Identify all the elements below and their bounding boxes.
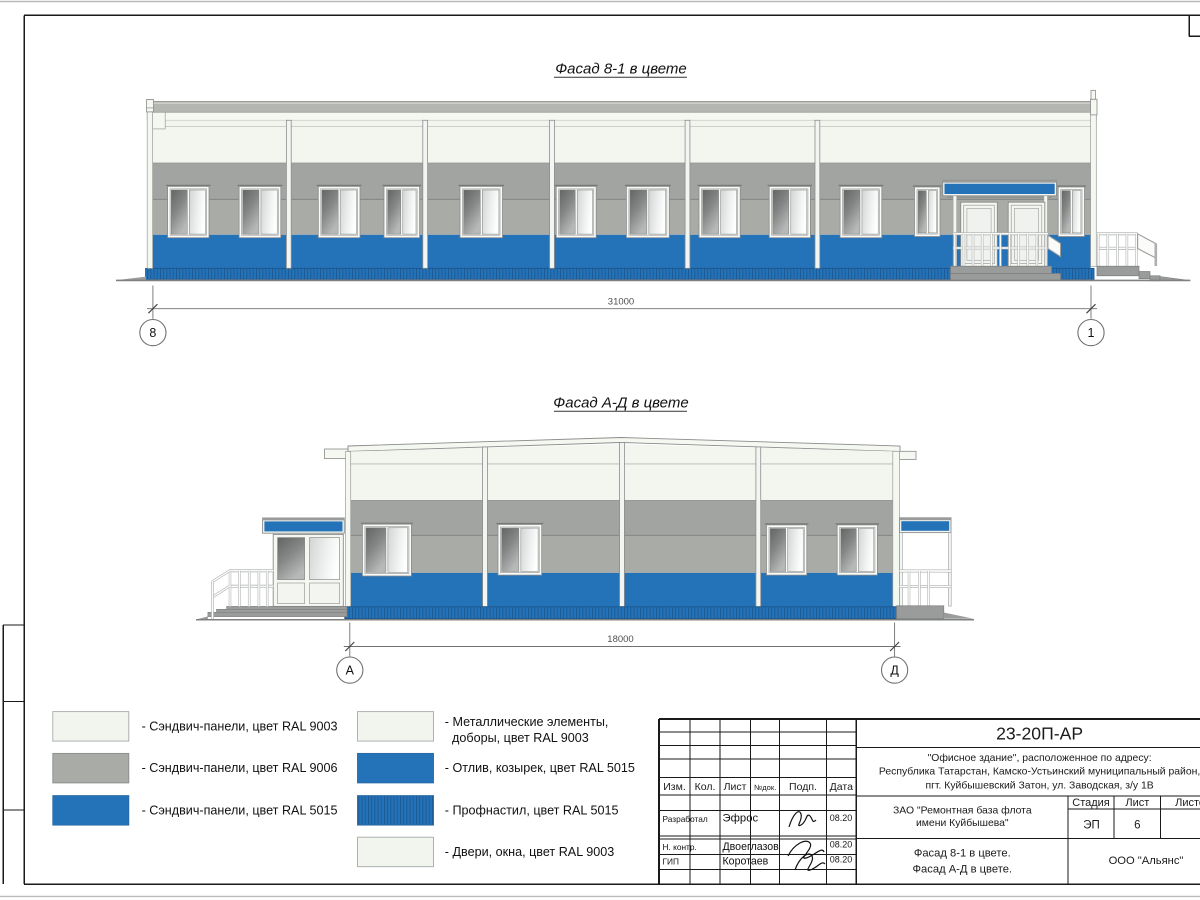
svg-text:Н. контр.: Н. контр. <box>663 842 697 852</box>
svg-text:Разработал: Разработал <box>663 814 708 824</box>
svg-text:Дата: Дата <box>830 781 853 793</box>
svg-text:Листов: Листов <box>1175 797 1200 809</box>
svg-text:Фасад 8-1 в цвете.: Фасад 8-1 в цвете. <box>914 847 1011 859</box>
svg-text:23-20П-АР: 23-20П-АР <box>996 724 1083 744</box>
svg-text:08.20: 08.20 <box>830 855 853 865</box>
svg-text:Д: Д <box>890 664 899 678</box>
svg-text:Республика Татарстан, Камско-У: Республика Татарстан, Камско-Устьинский … <box>879 766 1200 778</box>
svg-text:- Сэндвич-панели, цвет RAL 501: - Сэндвич-панели, цвет RAL 5015 <box>142 803 338 817</box>
svg-text:Двоеглазов: Двоеглазов <box>723 841 780 853</box>
svg-text:Стадия: Стадия <box>1072 797 1110 809</box>
svg-text:ЗАО "Ремонтная база флота: ЗАО "Ремонтная база флота <box>893 805 1032 817</box>
svg-text:Подп.: Подп. <box>789 781 817 793</box>
svg-text:"Офисное здание", расположенно: "Офисное здание", расположенное по адрес… <box>928 752 1152 764</box>
svg-text:пгт. Куйбышевский Затон, ул. З: пгт. Куйбышевский Затон, ул. Заводская, … <box>925 780 1153 792</box>
svg-text:6: 6 <box>1134 819 1140 831</box>
svg-text:Изм.: Изм. <box>663 781 686 793</box>
svg-text:8: 8 <box>149 326 156 340</box>
svg-text:- Отлив, козырек, цвет RAL 501: - Отлив, козырек, цвет RAL 5015 <box>445 761 635 775</box>
svg-text:Фасад А-Д в цвете: Фасад А-Д в цвете <box>553 395 688 412</box>
svg-text:ООО "Альянс": ООО "Альянс" <box>1109 855 1184 867</box>
svg-text:ЭП: ЭП <box>1083 819 1100 831</box>
svg-text:ГИП: ГИП <box>663 857 679 867</box>
svg-text:- Двери, окна, цвет RAL 9003: - Двери, окна, цвет RAL 9003 <box>445 845 614 859</box>
svg-text:08.20: 08.20 <box>830 840 853 850</box>
svg-text:31000: 31000 <box>608 297 634 308</box>
svg-text:Лист: Лист <box>1125 797 1149 809</box>
svg-text:доборы, цвет RAL 9003: доборы, цвет RAL 9003 <box>452 731 589 745</box>
svg-text:Фасад 8-1 в цвете: Фасад 8-1 в цвете <box>555 61 687 78</box>
svg-text:08.20: 08.20 <box>830 813 853 823</box>
svg-text:- Металлические элементы,: - Металлические элементы, <box>445 715 609 729</box>
svg-text:Лист: Лист <box>724 781 747 793</box>
svg-text:- Профнастил, цвет RAL 5015: - Профнастил, цвет RAL 5015 <box>445 803 619 817</box>
svg-text:- Сэндвич-панели, цвет RAL 900: - Сэндвич-панели, цвет RAL 9006 <box>142 761 338 775</box>
svg-text:Эфрос: Эфрос <box>723 813 759 825</box>
svg-text:- Сэндвич-панели, цвет RAL 900: - Сэндвич-панели, цвет RAL 9003 <box>142 719 338 733</box>
svg-text:Кол.: Кол. <box>695 781 716 793</box>
svg-text:№док.: №док. <box>754 783 776 792</box>
svg-text:имени Куйбышева": имени Куйбышева" <box>916 817 1009 829</box>
svg-text:Коротаев: Коротаев <box>723 855 769 867</box>
svg-text:Фасад А-Д в цвете.: Фасад А-Д в цвете. <box>913 863 1013 875</box>
svg-text:18000: 18000 <box>607 634 633 645</box>
svg-text:А: А <box>346 664 355 678</box>
svg-text:1: 1 <box>1088 326 1095 340</box>
